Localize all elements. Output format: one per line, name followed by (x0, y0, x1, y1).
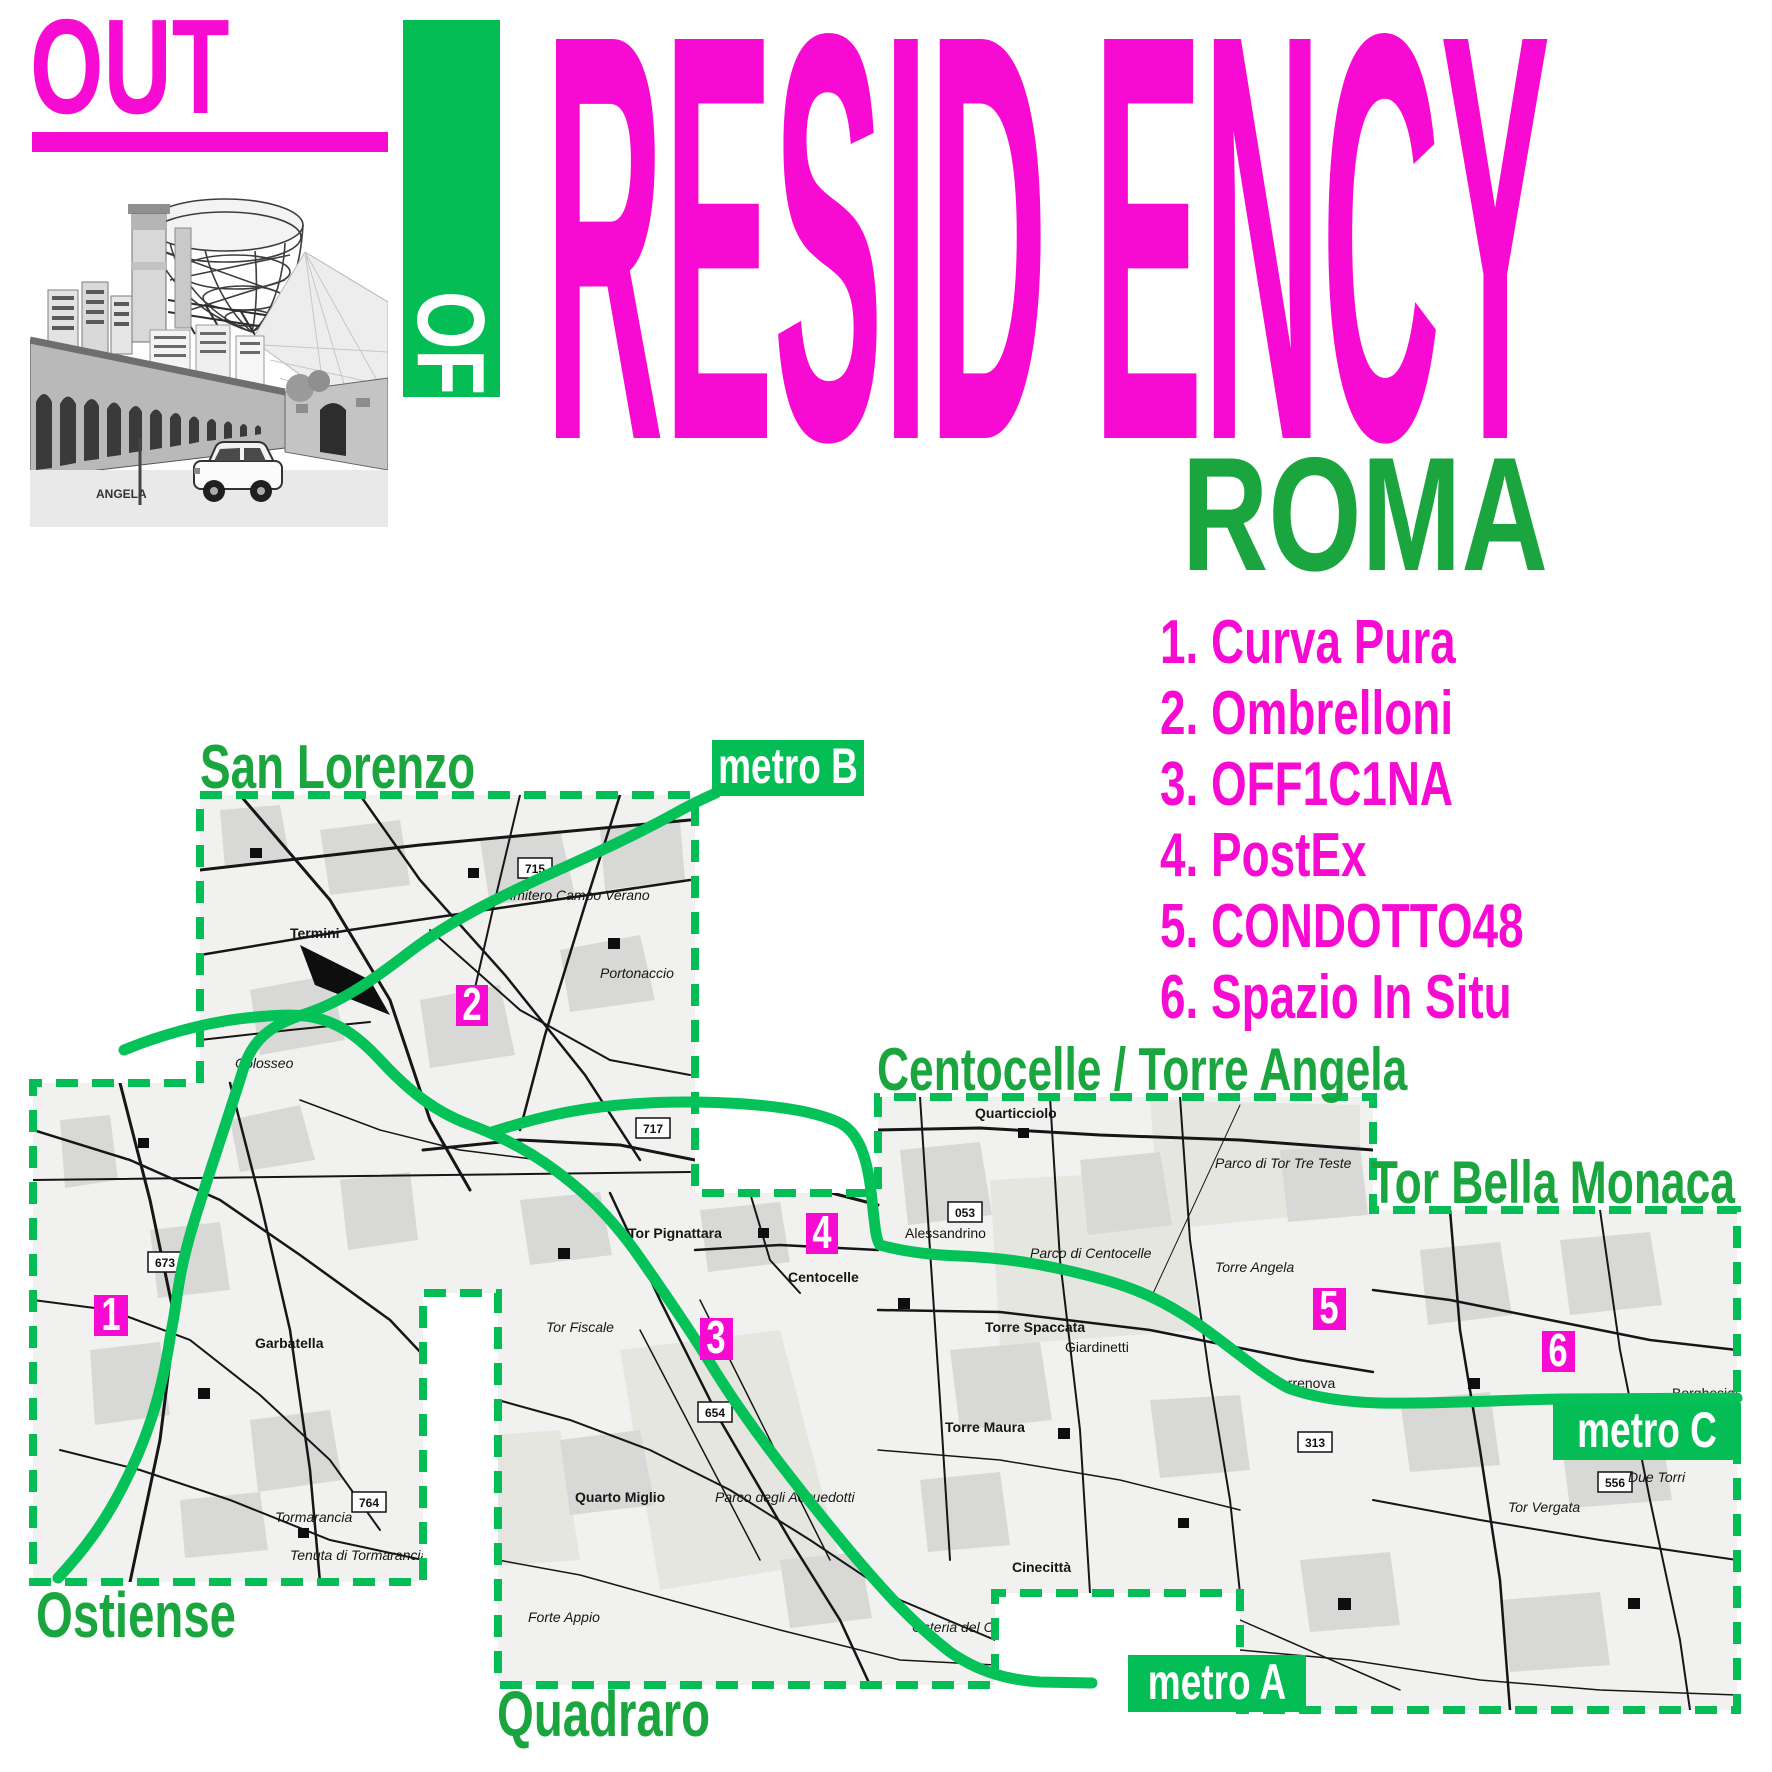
svg-text:717: 717 (643, 1122, 663, 1136)
map-marker-5: 5 (1313, 1281, 1346, 1333)
svg-text:Tor Pignattara: Tor Pignattara (628, 1225, 722, 1241)
venue-item-5: 5. CONDOTTO48 (1160, 891, 1524, 960)
svg-text:313: 313 (1305, 1436, 1325, 1450)
svg-text:Torre Angela: Torre Angela (1215, 1259, 1294, 1275)
district-label-quadraro: Quadraro (497, 1678, 710, 1750)
svg-text:Torre Spaccata: Torre Spaccata (985, 1319, 1085, 1335)
svg-text:Parco di Centocelle: Parco di Centocelle (1030, 1245, 1152, 1261)
svg-text:Garbatella: Garbatella (255, 1335, 324, 1351)
svg-text:3: 3 (706, 1311, 725, 1363)
svg-text:Alessandrino: Alessandrino (905, 1225, 986, 1241)
svg-text:Tor Vergata: Tor Vergata (1508, 1499, 1580, 1515)
title-underline-bar (32, 132, 388, 152)
svg-text:Torre Maura: Torre Maura (945, 1419, 1025, 1435)
svg-text:4: 4 (812, 1206, 832, 1258)
poster-title-out: OUT (30, 0, 229, 142)
svg-text:Tenuta di Tormarancia: Tenuta di Tormarancia (290, 1547, 428, 1563)
metro-b-badge: metro B (712, 739, 864, 796)
map-marker-3: 3 (700, 1311, 733, 1363)
svg-text:Tormarancia: Tormarancia (275, 1509, 353, 1525)
venue-item-1: 1. Curva Pura (1160, 607, 1456, 676)
svg-text:2: 2 (462, 978, 481, 1030)
venue-item-3: 3. OFF1C1NA (1160, 749, 1453, 818)
svg-text:Termini: Termini (290, 925, 340, 941)
svg-text:Quarticciolo: Quarticciolo (975, 1105, 1057, 1121)
district-label-san-lorenzo: San Lorenzo (200, 732, 475, 801)
district-label-tor-bella-monaca: Tor Bella Monaca (1371, 1150, 1736, 1217)
svg-text:Quarto Miglio: Quarto Miglio (575, 1489, 665, 1505)
metro-a-badge: metro A (1128, 1655, 1306, 1712)
svg-text:metro B: metro B (718, 739, 858, 795)
metro-c-badge: metro C (1553, 1403, 1741, 1460)
photo-caption: ANGELA (96, 487, 147, 501)
svg-text:1: 1 (101, 1288, 120, 1340)
svg-text:6: 6 (1548, 1324, 1567, 1376)
poster-out-of-residency: OUT OF RESID ENCY ROMA 1. Curva Pura 2. … (0, 0, 1772, 1772)
venue-item-4: 4. PostEx (1160, 820, 1366, 889)
svg-text:Portonaccio: Portonaccio (600, 965, 674, 981)
svg-text:Cinecittà: Cinecittà (1012, 1559, 1071, 1575)
svg-text:Tor Fiscale: Tor Fiscale (546, 1319, 614, 1335)
svg-text:Giardinetti: Giardinetti (1065, 1339, 1129, 1355)
svg-text:Forte Appio: Forte Appio (528, 1609, 600, 1625)
map-marker-6: 6 (1542, 1324, 1575, 1376)
wall-gate-illustration (285, 370, 388, 470)
district-label-ostiense: Ostiense (36, 1579, 236, 1651)
venue-list: 1. Curva Pura 2. Ombrelloni 3. OFF1C1NA … (1160, 607, 1524, 1031)
poster-title-roma: ROMA (1182, 424, 1548, 605)
svg-text:053: 053 (955, 1206, 975, 1220)
svg-text:556: 556 (1605, 1476, 1625, 1490)
poster-title-of: OF (397, 291, 504, 395)
svg-text:Parco di Tor Tre Teste: Parco di Tor Tre Teste (1215, 1155, 1352, 1171)
map-marker-1: 1 (94, 1288, 128, 1340)
svg-text:Parco degli Acquedotti: Parco degli Acquedotti (715, 1489, 855, 1505)
svg-text:5: 5 (1319, 1281, 1338, 1333)
svg-text:Centocelle: Centocelle (788, 1269, 859, 1285)
svg-text:654: 654 (705, 1406, 725, 1420)
district-label-centocelle-torre-angela: Centocelle / Torre Angela (877, 1037, 1408, 1104)
photo-collage: ANGELA (30, 178, 388, 527)
map-marker-2: 2 (456, 978, 488, 1030)
svg-text:metro A: metro A (1148, 1655, 1286, 1711)
map-marker-4: 4 (806, 1206, 838, 1258)
venue-item-2: 2. Ombrelloni (1160, 678, 1453, 747)
svg-text:metro C: metro C (1577, 1403, 1717, 1459)
svg-text:673: 673 (155, 1256, 175, 1270)
venue-item-6: 6. Spazio In Situ (1160, 962, 1512, 1031)
svg-text:Due Torri: Due Torri (1628, 1469, 1686, 1485)
svg-text:764: 764 (359, 1496, 379, 1510)
